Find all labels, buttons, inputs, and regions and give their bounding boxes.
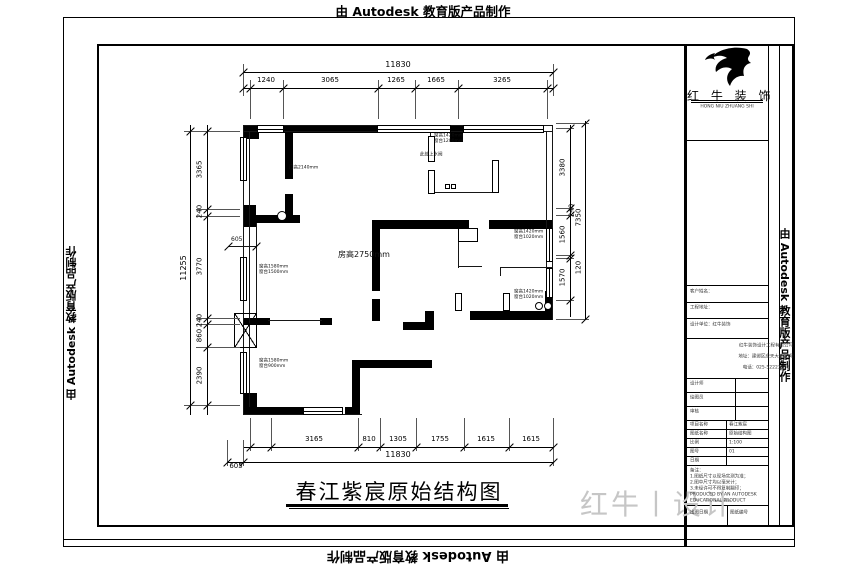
dim-label: 1570 bbox=[560, 258, 567, 298]
wall-thick bbox=[243, 393, 257, 415]
dim-label: 3365 bbox=[197, 150, 204, 190]
title-block-text: 设计师 bbox=[690, 381, 729, 386]
dim-label: 1240 bbox=[246, 77, 286, 84]
frame-line bbox=[687, 285, 768, 286]
dim-extension-line bbox=[553, 418, 554, 466]
title-block-text: 电话：025-52223135 bbox=[727, 365, 805, 370]
wall-thick bbox=[372, 229, 380, 291]
title-block-text: 1.图纸尺寸以现场实测为准； bbox=[690, 474, 729, 479]
title-block-text: EDUCATIONAL PRODUCT bbox=[690, 498, 729, 503]
frame-line bbox=[687, 338, 768, 339]
dim-label: 11830 bbox=[378, 451, 418, 459]
wall-thick bbox=[470, 311, 553, 320]
dim-extension-line bbox=[243, 64, 244, 96]
frame-line bbox=[792, 44, 794, 525]
title-block-text: 比例 bbox=[690, 440, 729, 445]
frame-line bbox=[794, 17, 795, 547]
wall-stub bbox=[503, 293, 510, 311]
dim-label: 2390 bbox=[197, 356, 204, 396]
dim-label: 3380 bbox=[560, 148, 567, 188]
wall-thick bbox=[372, 220, 469, 229]
plan-annotation: 此处上水阀 bbox=[420, 152, 465, 163]
wall-line bbox=[268, 320, 322, 321]
title-block-text: 图纸编号 bbox=[730, 510, 749, 515]
dim-label: 1615 bbox=[466, 436, 506, 443]
title-block-text: 工程地址： bbox=[690, 305, 729, 310]
frame-line bbox=[687, 302, 768, 303]
dim-label: 240 bbox=[197, 192, 204, 232]
wall-stub bbox=[445, 184, 450, 189]
dim-label: 3265 bbox=[482, 77, 522, 84]
window bbox=[257, 125, 284, 133]
wall-line bbox=[500, 267, 501, 276]
frame-line bbox=[687, 406, 768, 407]
bull-logo-icon bbox=[695, 47, 759, 89]
frame-line bbox=[687, 140, 768, 141]
title-block-text: 原始结构图 bbox=[729, 431, 749, 436]
frame-line bbox=[97, 44, 99, 527]
wall-line bbox=[458, 242, 459, 268]
dim-line bbox=[190, 125, 191, 415]
title-block-text: 01 bbox=[729, 449, 749, 454]
dim-extension-line bbox=[196, 405, 240, 406]
dim-label: 11255 bbox=[180, 248, 188, 288]
dim-line bbox=[243, 72, 553, 73]
dim-label: 605 bbox=[216, 463, 256, 470]
dim-line bbox=[207, 125, 208, 415]
dim-label: 1615 bbox=[511, 436, 551, 443]
dim-label: 1305 bbox=[378, 436, 418, 443]
frame-line bbox=[97, 525, 794, 527]
frame-line bbox=[289, 508, 509, 509]
brand-name: 红 牛 装 饰 bbox=[687, 87, 767, 104]
wall-line bbox=[249, 131, 250, 407]
dim-label: 3770 bbox=[197, 247, 204, 287]
frame-line bbox=[687, 378, 768, 379]
dim-label: 1665 bbox=[416, 77, 456, 84]
title-block-text: 地址：建邺区应天大街98号 bbox=[727, 354, 805, 359]
dim-line bbox=[227, 462, 553, 463]
title-block-text: 图纸名称 bbox=[690, 431, 729, 436]
wall-line bbox=[458, 266, 482, 267]
wall-stub bbox=[428, 170, 435, 194]
wall-line bbox=[228, 246, 256, 247]
wall-thick bbox=[403, 322, 434, 330]
dim-label: 1265 bbox=[376, 77, 416, 84]
dim-extension-line bbox=[553, 64, 554, 96]
dim-label: 860 bbox=[197, 316, 204, 356]
dim-label: 1560 bbox=[560, 215, 567, 255]
title-block-text: PRODUCED BY AN AUTODESK bbox=[690, 492, 729, 497]
title-block-text: 绘图员 bbox=[690, 395, 729, 400]
wall-stub bbox=[455, 293, 462, 311]
wall-thick bbox=[489, 220, 553, 229]
title-block-text: 审核 bbox=[690, 409, 729, 414]
title-block-text: 设计单位：红牛装饰 bbox=[690, 322, 729, 327]
frame-line bbox=[63, 546, 795, 547]
frame-line bbox=[63, 17, 64, 547]
dim-extension-line bbox=[196, 131, 240, 132]
drawing-sheet: 由 Autodesk 教育版产品制作 由 Autodesk 教育版产品制作 由 … bbox=[0, 0, 860, 580]
wall-thick bbox=[372, 299, 380, 321]
brand-caption: HONG NIU ZHUANG SHI bbox=[687, 104, 767, 109]
dim-label: 1755 bbox=[420, 436, 460, 443]
title-block-text: 1:100 bbox=[729, 440, 749, 445]
title-block-text: 项目名称 bbox=[690, 422, 729, 427]
dim-line bbox=[243, 88, 553, 89]
plan-annotation: 门高2140mm bbox=[289, 165, 347, 176]
frame-line bbox=[684, 44, 687, 546]
dim-label: 3065 bbox=[310, 77, 350, 84]
frame-line bbox=[687, 392, 768, 393]
dim-label: 7350 bbox=[576, 198, 583, 238]
dim-line bbox=[585, 121, 586, 319]
dim-label: 3165 bbox=[294, 436, 334, 443]
plan-annotation: 房高2750mm bbox=[338, 249, 390, 260]
title-block-text: 春江紫宸 bbox=[729, 422, 749, 427]
title-block-text: 3.未经许可不得复制翻印； bbox=[690, 486, 729, 491]
dim-label: 11830 bbox=[378, 61, 418, 69]
title-block-text: 客户姓名： bbox=[690, 289, 729, 294]
window bbox=[240, 137, 247, 181]
wall-thick bbox=[352, 360, 432, 368]
dim-label: 120 bbox=[576, 248, 583, 288]
drawing-title: 春江紫宸原始结构图 bbox=[288, 476, 510, 506]
window bbox=[240, 257, 247, 301]
frame-line bbox=[687, 318, 768, 319]
wall-stub bbox=[451, 184, 456, 189]
autodesk-watermark-left: 由 Autodesk 教育版产品制作 bbox=[64, 190, 80, 400]
door-symbol bbox=[277, 211, 287, 221]
wall-thick bbox=[243, 215, 300, 223]
autodesk-watermark-bottom: 由 Autodesk 教育版产品制作 bbox=[318, 548, 518, 567]
wall-line bbox=[256, 223, 257, 313]
title-block-text: 图号 bbox=[690, 449, 729, 454]
window bbox=[463, 125, 544, 133]
plan-annotation: 窗高1580mm窗台900mm bbox=[259, 358, 317, 380]
window bbox=[303, 407, 343, 415]
frame-line bbox=[63, 17, 795, 18]
title-block-text: 出图日期 bbox=[690, 510, 709, 515]
title-block-text: 日期 bbox=[690, 458, 729, 463]
frame-line bbox=[97, 44, 794, 46]
wall-line bbox=[430, 192, 495, 193]
plan-annotation: 窗高1580mm窗台1500mm bbox=[259, 264, 317, 286]
title-block-text: 2.图中尺寸均以毫米计； bbox=[690, 480, 729, 485]
window bbox=[377, 125, 451, 133]
frame-line bbox=[779, 44, 780, 525]
title-block-text: 红牛装饰设计工程有限公司 bbox=[727, 343, 805, 348]
wall-stub bbox=[492, 160, 499, 193]
title-block-text: 备注： bbox=[690, 468, 729, 473]
window bbox=[240, 352, 247, 394]
wall-stub bbox=[458, 228, 478, 242]
